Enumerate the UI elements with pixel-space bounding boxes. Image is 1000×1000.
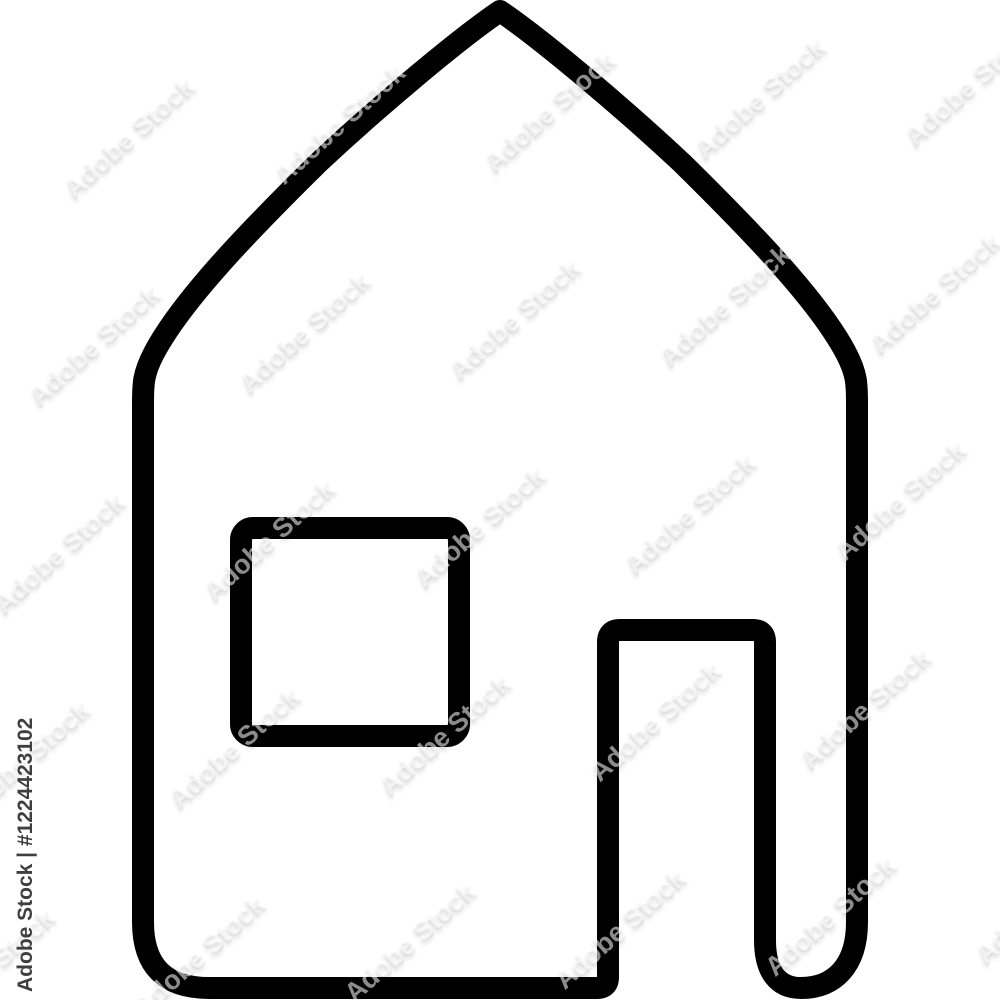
watermark-credit: Adobe Stock | #1224423102: [14, 718, 38, 992]
house-icon: [0, 0, 1000, 1000]
house-outline: [143, 11, 857, 988]
stock-image-preview: Adobe StockAdobe StockAdobe StockAdobe S…: [0, 0, 1000, 1000]
house-window: [241, 528, 459, 736]
